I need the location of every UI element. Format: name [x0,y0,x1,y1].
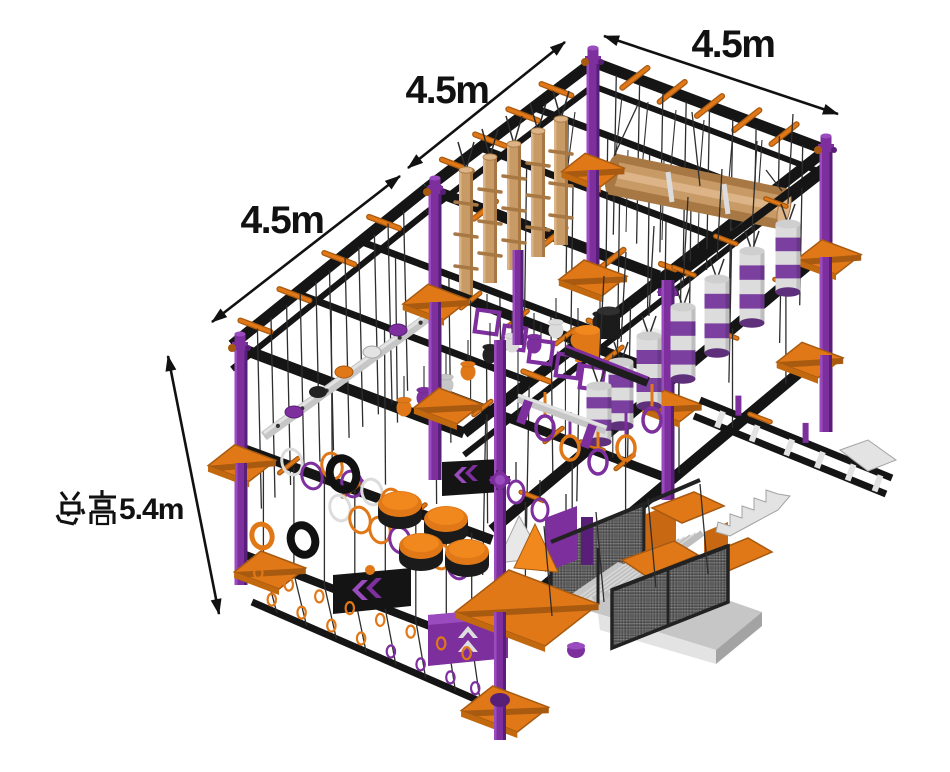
svg-text:5.4m: 5.4m [119,493,183,526]
svg-text:4.5m: 4.5m [406,69,489,112]
svg-text:4.5m: 4.5m [241,199,324,242]
svg-text:4.5m: 4.5m [692,23,775,66]
